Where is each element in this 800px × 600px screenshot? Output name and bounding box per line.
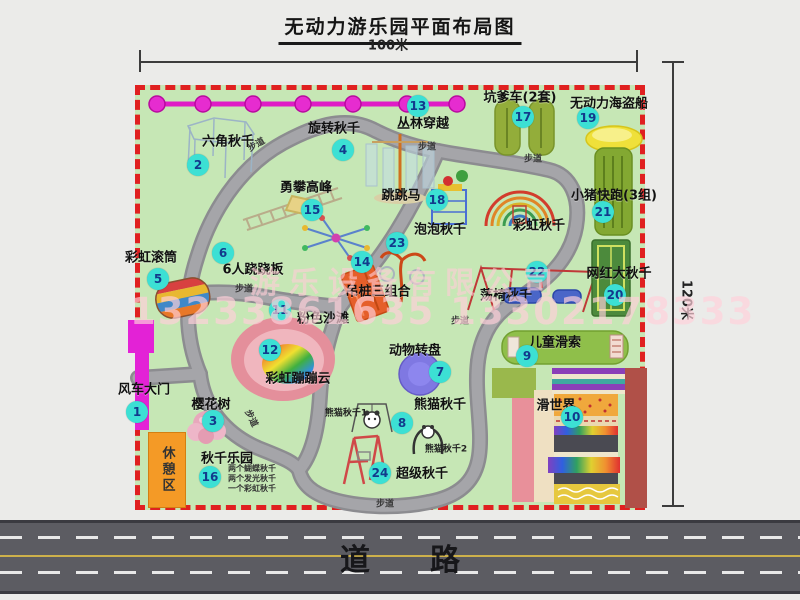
plan-map-canvas: 无动力游乐园平面布局图 100米 120米 — [0, 0, 800, 600]
swing-park-note-3: 一个彩虹秋千 — [228, 483, 276, 494]
badge-1: 1 — [126, 401, 148, 423]
label-big-swing: 网红大秋千 — [586, 263, 651, 282]
badge-18: 18 — [426, 189, 448, 211]
badge-7: 7 — [429, 361, 451, 383]
rest-area-label: 休憩区 — [158, 446, 177, 494]
label-panda-swing-2: 熊猫秋千2 — [425, 442, 467, 455]
walkway-tag-3: 步道 — [524, 152, 542, 165]
badge-19: 19 — [577, 107, 599, 129]
badge-11: 11 — [269, 299, 291, 321]
badge-9: 9 — [516, 345, 538, 367]
label-rainbow-roller: 彩虹滚筒 — [125, 247, 177, 266]
label-pit-car: 坑爹车(2套) — [484, 87, 557, 106]
badge-16: 16 — [199, 466, 221, 488]
badge-2: 2 — [187, 154, 209, 176]
badge-13: 13 — [407, 95, 429, 117]
badge-10: 10 — [561, 406, 583, 428]
label-panda-swing: 熊猫秋千 — [414, 394, 466, 413]
badge-22: 22 — [526, 261, 548, 283]
badge-5: 5 — [147, 268, 169, 290]
label-jumping-horse: 跳跳马 — [381, 185, 420, 204]
road-label: 道 路 — [340, 535, 460, 579]
badge-20: 20 — [604, 284, 626, 306]
badge-3: 3 — [202, 410, 224, 432]
dimension-right-line — [672, 62, 674, 506]
badge-23: 23 — [386, 232, 408, 254]
label-peak-climbing: 勇攀高峰 — [280, 177, 332, 196]
label-piggy-run: 小猪快跑(3组) — [571, 185, 657, 204]
walkway-tag-7: 步道 — [376, 497, 394, 510]
label-rotating-swing: 旋转秋千 — [308, 118, 360, 137]
dimension-right-tick-bottom — [662, 505, 684, 507]
badge-24: 24 — [369, 462, 391, 484]
dimension-top-line — [140, 61, 638, 63]
label-pink-beach: 粉色沙滩 — [297, 308, 349, 327]
road: 道 路 — [0, 520, 800, 594]
label-animal-carousel: 动物转盘 — [389, 340, 441, 359]
dimension-top-tick-left — [139, 50, 141, 72]
walkway-tag-5: 步道 — [451, 314, 469, 327]
badge-15: 15 — [301, 199, 323, 221]
label-rainbow-bounce-cloud: 彩虹蹦蹦云 — [265, 368, 330, 387]
badge-4: 4 — [332, 139, 354, 161]
label-super-swing: 超级秋千 — [396, 463, 448, 482]
label-swing-chair: 荡椅秋千 — [480, 285, 532, 304]
label-kids-zipline: 儿童滑索 — [529, 332, 581, 351]
walkway-tag-4: 步道 — [235, 282, 253, 295]
label-bubble-swing: 泡泡秋千 — [414, 219, 466, 238]
dimension-height-label: 120米 — [679, 280, 698, 320]
dimension-top-tick-right — [636, 50, 638, 72]
label-hanging-pile-combo: 吊桩三组合 — [345, 281, 410, 300]
label-seesaw: 6人跷跷板 — [222, 259, 283, 278]
dimension-width-label: 100米 — [368, 35, 408, 54]
rest-area-box: 休憩区 — [148, 432, 186, 508]
badge-17: 17 — [512, 106, 534, 128]
dimension-right-tick-top — [662, 61, 684, 63]
badge-14: 14 — [351, 251, 373, 273]
label-windmill-gate: 风车大门 — [118, 379, 170, 398]
label-rainbow-swing: 彩虹秋千 — [513, 215, 565, 234]
badge-21: 21 — [592, 201, 614, 223]
badge-8: 8 — [391, 412, 413, 434]
walkway-tag-2: 步道 — [418, 140, 436, 153]
label-panda-swing-1: 熊猫秋千1 — [325, 406, 367, 419]
badge-12: 12 — [259, 339, 281, 361]
badge-6: 6 — [212, 242, 234, 264]
